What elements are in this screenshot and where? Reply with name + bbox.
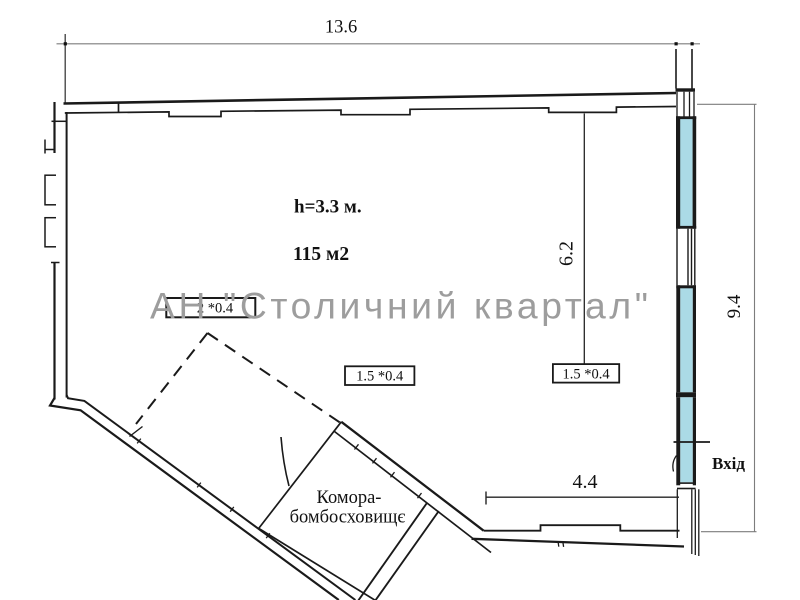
svg-text:бомбосховищє: бомбосховищє [290, 508, 406, 528]
svg-text:1.5 *0.4: 1.5 *0.4 [562, 366, 610, 382]
svg-text:115 м2: 115 м2 [293, 244, 349, 265]
svg-text:9.4: 9.4 [724, 294, 745, 318]
svg-text:6.2: 6.2 [556, 241, 578, 266]
svg-text:Вхід: Вхід [712, 454, 745, 473]
svg-text:Комора-: Комора- [317, 488, 382, 508]
svg-text:h=3.3 м.: h=3.3 м. [294, 196, 362, 217]
svg-text:4.4: 4.4 [573, 471, 598, 493]
svg-text:АН "Столичний квартал": АН "Столичний квартал" [150, 285, 652, 327]
svg-text:13.6: 13.6 [325, 18, 357, 38]
svg-text:1.5 *0.4: 1.5 *0.4 [356, 369, 404, 385]
